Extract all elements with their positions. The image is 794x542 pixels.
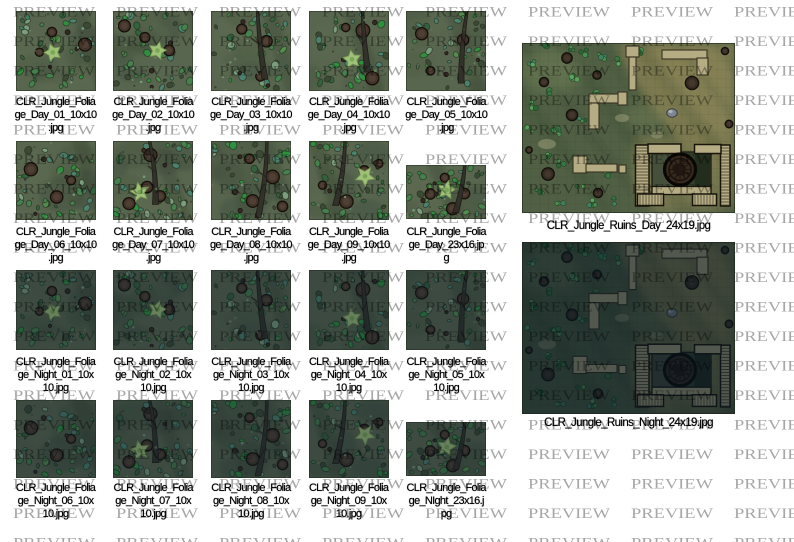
svg-text:PREVIEW: PREVIEW: [13, 123, 96, 139]
svg-text:PREVIEW: PREVIEW: [13, 506, 96, 522]
svg-text:PREVIEW: PREVIEW: [528, 123, 611, 139]
svg-text:PREVIEW: PREVIEW: [116, 5, 199, 21]
svg-text:PREVIEW: PREVIEW: [116, 329, 199, 345]
svg-text:PREVIEW: PREVIEW: [631, 477, 714, 493]
svg-text:PREVIEW: PREVIEW: [425, 300, 508, 316]
svg-text:PREVIEW: PREVIEW: [734, 359, 794, 375]
svg-text:PREVIEW: PREVIEW: [734, 182, 794, 198]
svg-text:PREVIEW: PREVIEW: [13, 477, 96, 493]
svg-text:PREVIEW: PREVIEW: [631, 270, 714, 286]
svg-text:PREVIEW: PREVIEW: [116, 211, 199, 227]
svg-text:PREVIEW: PREVIEW: [322, 152, 405, 168]
svg-text:PREVIEW: PREVIEW: [322, 329, 405, 345]
svg-text:PREVIEW: PREVIEW: [116, 388, 199, 404]
svg-text:PREVIEW: PREVIEW: [116, 182, 199, 198]
svg-text:PREVIEW: PREVIEW: [219, 418, 302, 434]
svg-text:PREVIEW: PREVIEW: [425, 418, 508, 434]
svg-text:PREVIEW: PREVIEW: [219, 329, 302, 345]
svg-text:PREVIEW: PREVIEW: [528, 211, 611, 227]
svg-text:PREVIEW: PREVIEW: [219, 359, 302, 375]
svg-text:PREVIEW: PREVIEW: [734, 270, 794, 286]
svg-text:PREVIEW: PREVIEW: [219, 300, 302, 316]
svg-text:PREVIEW: PREVIEW: [116, 241, 199, 257]
svg-text:PREVIEW: PREVIEW: [631, 536, 714, 542]
svg-text:PREVIEW: PREVIEW: [13, 211, 96, 227]
svg-text:PREVIEW: PREVIEW: [13, 182, 96, 198]
svg-text:PREVIEW: PREVIEW: [425, 359, 508, 375]
svg-text:PREVIEW: PREVIEW: [631, 123, 714, 139]
svg-text:PREVIEW: PREVIEW: [528, 93, 611, 109]
svg-text:PREVIEW: PREVIEW: [116, 300, 199, 316]
svg-text:PREVIEW: PREVIEW: [219, 536, 302, 542]
svg-text:PREVIEW: PREVIEW: [631, 506, 714, 522]
svg-text:PREVIEW: PREVIEW: [425, 182, 508, 198]
svg-text:PREVIEW: PREVIEW: [528, 300, 611, 316]
svg-text:PREVIEW: PREVIEW: [13, 93, 96, 109]
svg-text:PREVIEW: PREVIEW: [322, 300, 405, 316]
svg-text:PREVIEW: PREVIEW: [734, 123, 794, 139]
svg-text:PREVIEW: PREVIEW: [116, 506, 199, 522]
svg-text:PREVIEW: PREVIEW: [13, 388, 96, 404]
svg-text:PREVIEW: PREVIEW: [528, 270, 611, 286]
svg-text:PREVIEW: PREVIEW: [322, 123, 405, 139]
svg-text:PREVIEW: PREVIEW: [425, 536, 508, 542]
svg-text:PREVIEW: PREVIEW: [528, 418, 611, 434]
svg-text:PREVIEW: PREVIEW: [219, 182, 302, 198]
svg-text:PREVIEW: PREVIEW: [219, 64, 302, 80]
svg-text:PREVIEW: PREVIEW: [734, 5, 794, 21]
svg-text:PREVIEW: PREVIEW: [425, 152, 508, 168]
svg-text:PREVIEW: PREVIEW: [219, 34, 302, 50]
svg-text:PREVIEW: PREVIEW: [116, 34, 199, 50]
svg-text:PREVIEW: PREVIEW: [116, 536, 199, 542]
svg-text:PREVIEW: PREVIEW: [425, 447, 508, 463]
svg-text:PREVIEW: PREVIEW: [734, 329, 794, 345]
svg-text:PREVIEW: PREVIEW: [631, 211, 714, 227]
svg-text:PREVIEW: PREVIEW: [734, 300, 794, 316]
svg-text:PREVIEW: PREVIEW: [528, 359, 611, 375]
svg-text:PREVIEW: PREVIEW: [734, 152, 794, 168]
svg-text:PREVIEW: PREVIEW: [425, 388, 508, 404]
svg-text:PREVIEW: PREVIEW: [322, 477, 405, 493]
svg-text:PREVIEW: PREVIEW: [528, 241, 611, 257]
svg-text:PREVIEW: PREVIEW: [322, 5, 405, 21]
svg-text:PREVIEW: PREVIEW: [219, 5, 302, 21]
svg-text:PREVIEW: PREVIEW: [219, 388, 302, 404]
svg-text:PREVIEW: PREVIEW: [734, 447, 794, 463]
svg-text:PREVIEW: PREVIEW: [734, 477, 794, 493]
svg-text:PREVIEW: PREVIEW: [322, 93, 405, 109]
svg-text:PREVIEW: PREVIEW: [631, 34, 714, 50]
svg-text:PREVIEW: PREVIEW: [425, 64, 508, 80]
svg-text:PREVIEW: PREVIEW: [116, 64, 199, 80]
svg-text:PREVIEW: PREVIEW: [528, 388, 611, 404]
svg-text:PREVIEW: PREVIEW: [13, 64, 96, 80]
svg-text:PREVIEW: PREVIEW: [425, 329, 508, 345]
svg-text:PREVIEW: PREVIEW: [631, 182, 714, 198]
svg-text:PREVIEW: PREVIEW: [219, 447, 302, 463]
svg-text:PREVIEW: PREVIEW: [734, 536, 794, 542]
svg-text:PREVIEW: PREVIEW: [734, 64, 794, 80]
svg-text:PREVIEW: PREVIEW: [219, 241, 302, 257]
svg-text:PREVIEW: PREVIEW: [631, 93, 714, 109]
svg-text:PREVIEW: PREVIEW: [322, 418, 405, 434]
svg-text:PREVIEW: PREVIEW: [116, 418, 199, 434]
svg-text:PREVIEW: PREVIEW: [734, 241, 794, 257]
svg-text:PREVIEW: PREVIEW: [13, 359, 96, 375]
svg-text:PREVIEW: PREVIEW: [425, 93, 508, 109]
svg-text:PREVIEW: PREVIEW: [13, 329, 96, 345]
svg-text:PREVIEW: PREVIEW: [734, 388, 794, 404]
svg-text:PREVIEW: PREVIEW: [13, 447, 96, 463]
svg-text:PREVIEW: PREVIEW: [631, 329, 714, 345]
svg-text:PREVIEW: PREVIEW: [734, 418, 794, 434]
svg-text:PREVIEW: PREVIEW: [322, 536, 405, 542]
svg-text:PREVIEW: PREVIEW: [528, 477, 611, 493]
svg-text:PREVIEW: PREVIEW: [425, 477, 508, 493]
svg-text:PREVIEW: PREVIEW: [322, 64, 405, 80]
svg-text:PREVIEW: PREVIEW: [425, 34, 508, 50]
svg-text:PREVIEW: PREVIEW: [631, 300, 714, 316]
svg-text:PREVIEW: PREVIEW: [528, 182, 611, 198]
svg-text:PREVIEW: PREVIEW: [631, 418, 714, 434]
svg-text:PREVIEW: PREVIEW: [219, 270, 302, 286]
svg-text:PREVIEW: PREVIEW: [528, 536, 611, 542]
svg-text:PREVIEW: PREVIEW: [528, 64, 611, 80]
svg-text:PREVIEW: PREVIEW: [322, 211, 405, 227]
svg-text:PREVIEW: PREVIEW: [425, 211, 508, 227]
svg-text:PREVIEW: PREVIEW: [734, 506, 794, 522]
svg-text:PREVIEW: PREVIEW: [116, 477, 199, 493]
svg-text:PREVIEW: PREVIEW: [322, 447, 405, 463]
svg-text:PREVIEW: PREVIEW: [528, 152, 611, 168]
svg-text:PREVIEW: PREVIEW: [322, 34, 405, 50]
svg-text:PREVIEW: PREVIEW: [116, 123, 199, 139]
svg-text:PREVIEW: PREVIEW: [425, 123, 508, 139]
svg-text:PREVIEW: PREVIEW: [631, 447, 714, 463]
svg-text:PREVIEW: PREVIEW: [734, 211, 794, 227]
svg-text:PREVIEW: PREVIEW: [322, 359, 405, 375]
svg-text:PREVIEW: PREVIEW: [322, 388, 405, 404]
svg-text:PREVIEW: PREVIEW: [322, 270, 405, 286]
svg-text:PREVIEW: PREVIEW: [631, 241, 714, 257]
svg-text:PREVIEW: PREVIEW: [219, 506, 302, 522]
svg-text:PREVIEW: PREVIEW: [116, 359, 199, 375]
svg-text:PREVIEW: PREVIEW: [425, 5, 508, 21]
svg-text:PREVIEW: PREVIEW: [13, 152, 96, 168]
svg-text:PREVIEW: PREVIEW: [734, 93, 794, 109]
svg-text:PREVIEW: PREVIEW: [13, 34, 96, 50]
svg-text:PREVIEW: PREVIEW: [219, 211, 302, 227]
svg-text:PREVIEW: PREVIEW: [116, 93, 199, 109]
svg-text:PREVIEW: PREVIEW: [631, 5, 714, 21]
svg-text:PREVIEW: PREVIEW: [219, 152, 302, 168]
svg-text:PREVIEW: PREVIEW: [322, 182, 405, 198]
svg-text:PREVIEW: PREVIEW: [13, 418, 96, 434]
svg-text:PREVIEW: PREVIEW: [631, 388, 714, 404]
svg-text:PREVIEW: PREVIEW: [322, 506, 405, 522]
svg-text:PREVIEW: PREVIEW: [528, 329, 611, 345]
svg-text:PREVIEW: PREVIEW: [116, 270, 199, 286]
svg-text:PREVIEW: PREVIEW: [425, 270, 508, 286]
svg-text:PREVIEW: PREVIEW: [528, 34, 611, 50]
svg-text:PREVIEW: PREVIEW: [13, 241, 96, 257]
svg-text:PREVIEW: PREVIEW: [219, 123, 302, 139]
svg-text:PREVIEW: PREVIEW: [322, 241, 405, 257]
svg-text:PREVIEW: PREVIEW: [116, 152, 199, 168]
svg-text:PREVIEW: PREVIEW: [425, 506, 508, 522]
svg-text:PREVIEW: PREVIEW: [631, 359, 714, 375]
svg-text:PREVIEW: PREVIEW: [528, 447, 611, 463]
svg-text:PREVIEW: PREVIEW: [631, 64, 714, 80]
svg-text:PREVIEW: PREVIEW: [425, 241, 508, 257]
svg-text:PREVIEW: PREVIEW: [13, 536, 96, 542]
svg-text:PREVIEW: PREVIEW: [219, 93, 302, 109]
svg-text:PREVIEW: PREVIEW: [13, 270, 96, 286]
svg-text:PREVIEW: PREVIEW: [13, 5, 96, 21]
svg-text:PREVIEW: PREVIEW: [631, 152, 714, 168]
svg-text:PREVIEW: PREVIEW: [734, 34, 794, 50]
svg-text:PREVIEW: PREVIEW: [528, 506, 611, 522]
svg-text:PREVIEW: PREVIEW: [116, 447, 199, 463]
svg-text:PREVIEW: PREVIEW: [219, 477, 302, 493]
svg-text:PREVIEW: PREVIEW: [13, 300, 96, 316]
svg-text:PREVIEW: PREVIEW: [528, 5, 611, 21]
